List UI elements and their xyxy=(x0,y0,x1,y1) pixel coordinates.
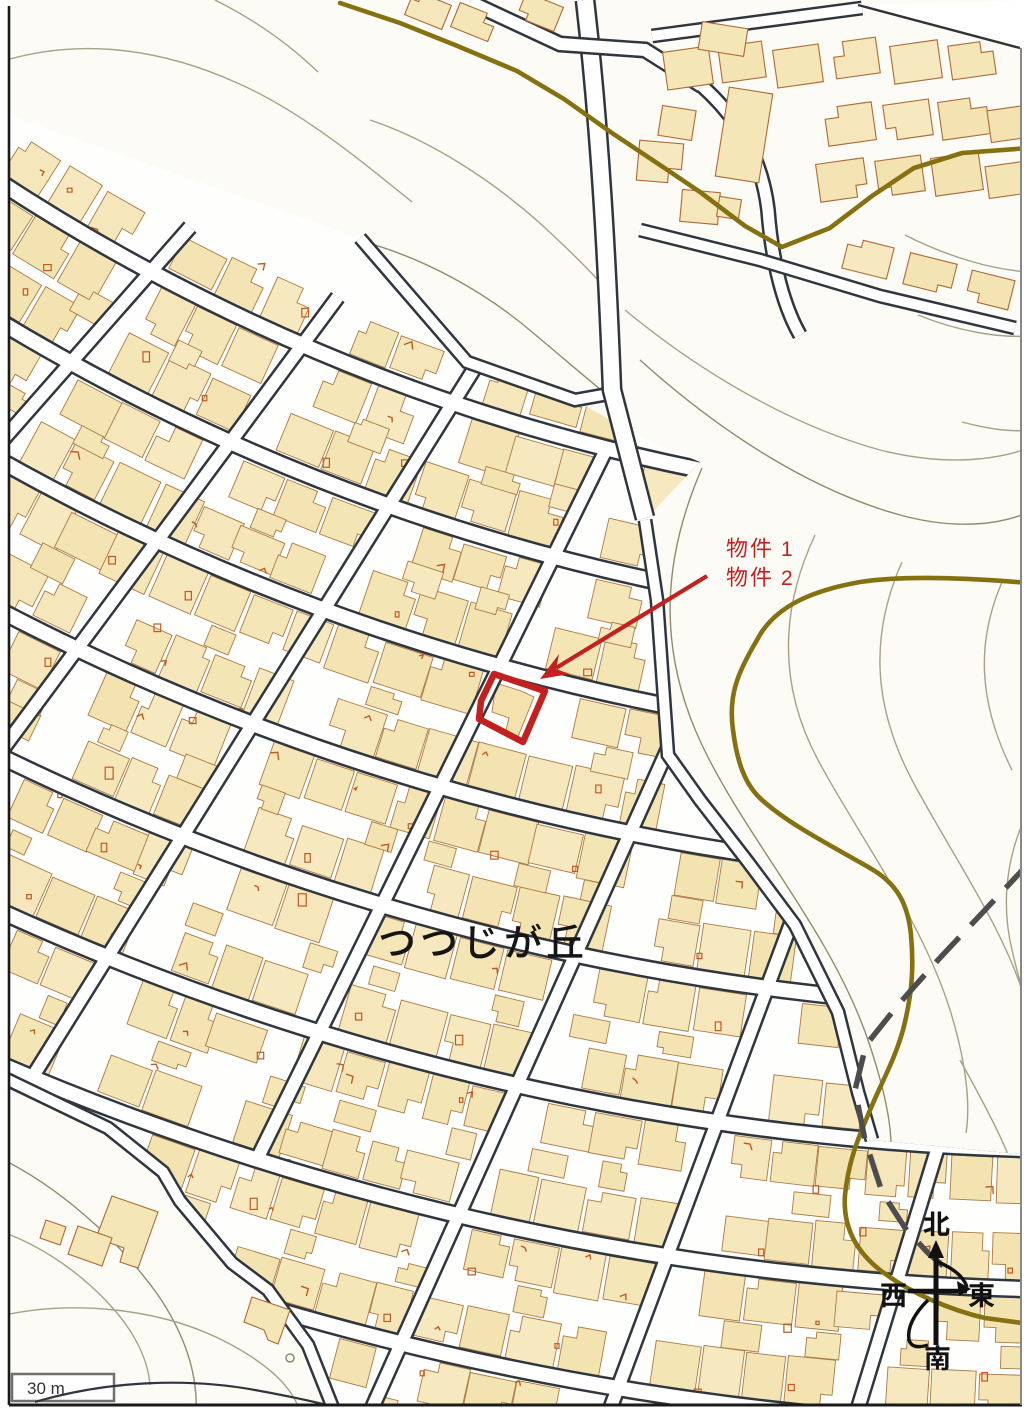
svg-text:2: 2 xyxy=(781,567,793,590)
svg-text:1: 1 xyxy=(781,538,793,561)
